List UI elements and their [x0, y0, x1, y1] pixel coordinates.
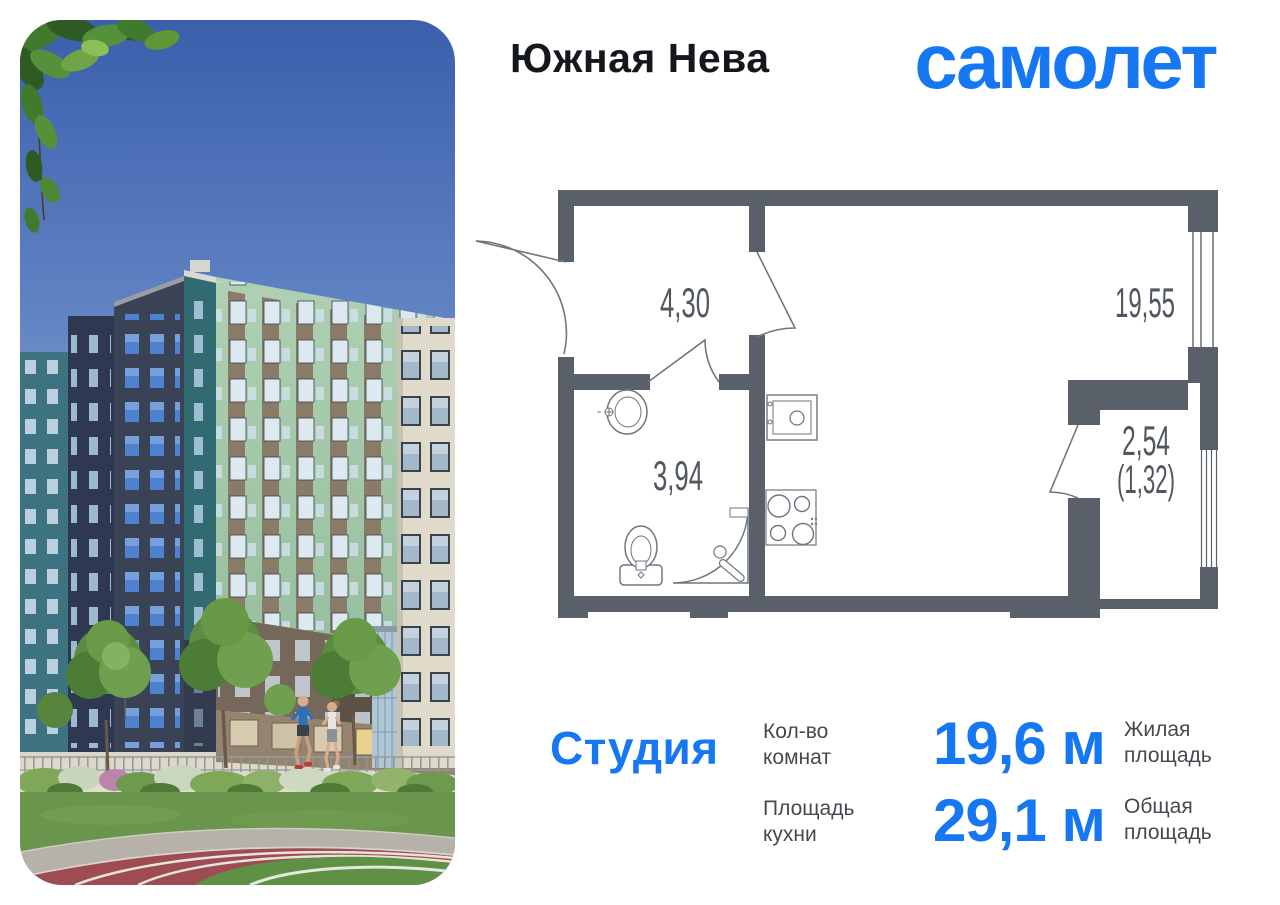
- floor-plan-drawing: 4,30 19,55 3,94 2,54 (1,32): [470, 175, 1230, 635]
- apartment-type: Студия: [550, 721, 719, 775]
- kitchen-sink-icon: [767, 395, 817, 440]
- building-teal-slab: [20, 352, 68, 752]
- kitchen-area-label: Площадь кухни: [763, 796, 881, 848]
- walls: [558, 190, 1218, 618]
- balcony-area-reduced-label: (1,32): [1117, 458, 1175, 502]
- balcony-window-icon: [1200, 450, 1218, 567]
- stove-icon: [766, 490, 817, 545]
- bath-sink-icon: [597, 390, 647, 434]
- floor-plan: 4,30 19,55 3,94 2,54 (1,32): [470, 175, 1230, 635]
- brand-logo: самолет: [914, 22, 1216, 100]
- toilet-icon: [620, 526, 662, 585]
- living-area-value: 19,6 м: [933, 714, 1105, 774]
- listing-card: { "colors": { "accent_blue": "#1677F3", …: [0, 0, 1280, 905]
- living-room-area-label: 19,55: [1115, 279, 1175, 326]
- balcony-area-label: 2,54: [1122, 417, 1170, 464]
- hallway-area-label: 4,30: [660, 279, 710, 326]
- building-render: [20, 20, 455, 885]
- living-area-label: Жилая площадь: [1124, 717, 1242, 769]
- bathroom-area-label: 3,94: [653, 452, 703, 499]
- project-photo: [20, 20, 455, 885]
- shower-icon: [673, 508, 748, 583]
- total-area-label: Общая площадь: [1124, 794, 1242, 846]
- rooms-count-label: Кол-во комнат: [763, 719, 881, 771]
- total-area-value: 29,1 м: [933, 791, 1105, 851]
- project-title: Южная Нева: [510, 38, 770, 79]
- window-icon: [1188, 232, 1218, 347]
